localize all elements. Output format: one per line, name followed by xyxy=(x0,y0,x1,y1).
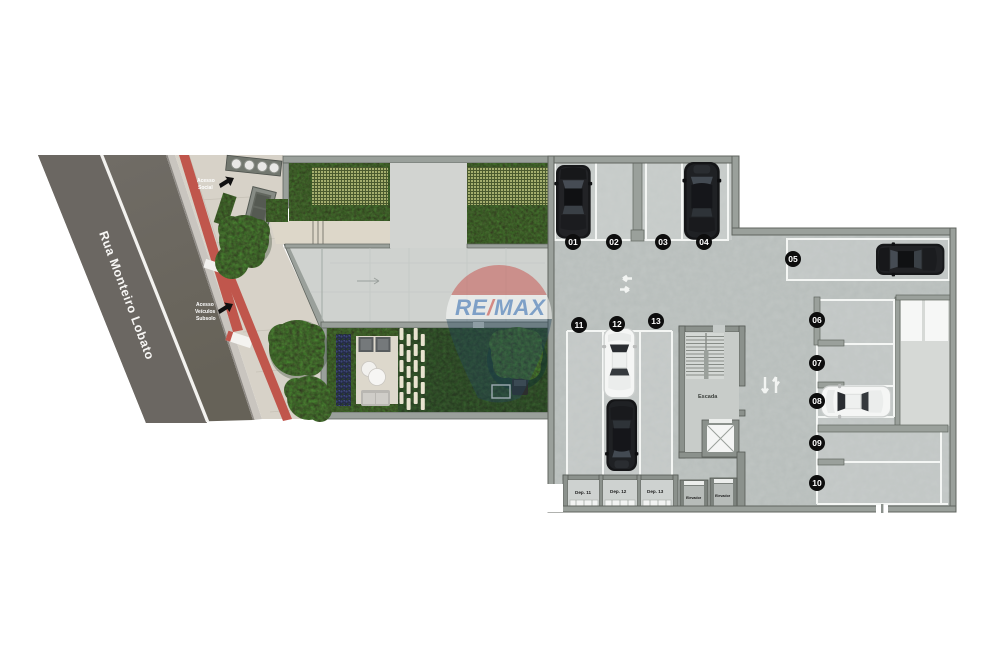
svg-text:Dep. 11: Dep. 11 xyxy=(575,490,592,495)
svg-text:Elevador: Elevador xyxy=(715,494,731,498)
svg-text:RE/MAX: RE/MAX xyxy=(455,295,547,320)
svg-text:Elevador: Elevador xyxy=(686,496,702,500)
svg-text:07: 07 xyxy=(812,358,822,368)
svg-text:Veículos: Veículos xyxy=(195,309,216,315)
svg-text:08: 08 xyxy=(812,396,822,406)
svg-text:09: 09 xyxy=(812,438,822,448)
svg-text:02: 02 xyxy=(609,237,619,247)
svg-text:Escada: Escada xyxy=(698,394,718,400)
svg-text:Dep. 13: Dep. 13 xyxy=(647,489,664,494)
svg-text:01: 01 xyxy=(568,237,578,247)
svg-text:06: 06 xyxy=(812,315,822,325)
svg-text:03: 03 xyxy=(658,237,668,247)
svg-text:12: 12 xyxy=(612,319,622,329)
svg-text:Subsolo: Subsolo xyxy=(196,316,216,322)
svg-text:04: 04 xyxy=(699,237,709,247)
svg-text:Acesso: Acesso xyxy=(197,178,215,184)
svg-text:11: 11 xyxy=(575,320,584,330)
svg-text:13: 13 xyxy=(651,316,661,326)
svg-text:05: 05 xyxy=(788,254,798,264)
svg-text:Dep. 12: Dep. 12 xyxy=(610,489,627,494)
svg-text:Social: Social xyxy=(198,185,213,191)
svg-text:Acesso: Acesso xyxy=(196,302,214,308)
svg-text:10: 10 xyxy=(812,478,822,488)
